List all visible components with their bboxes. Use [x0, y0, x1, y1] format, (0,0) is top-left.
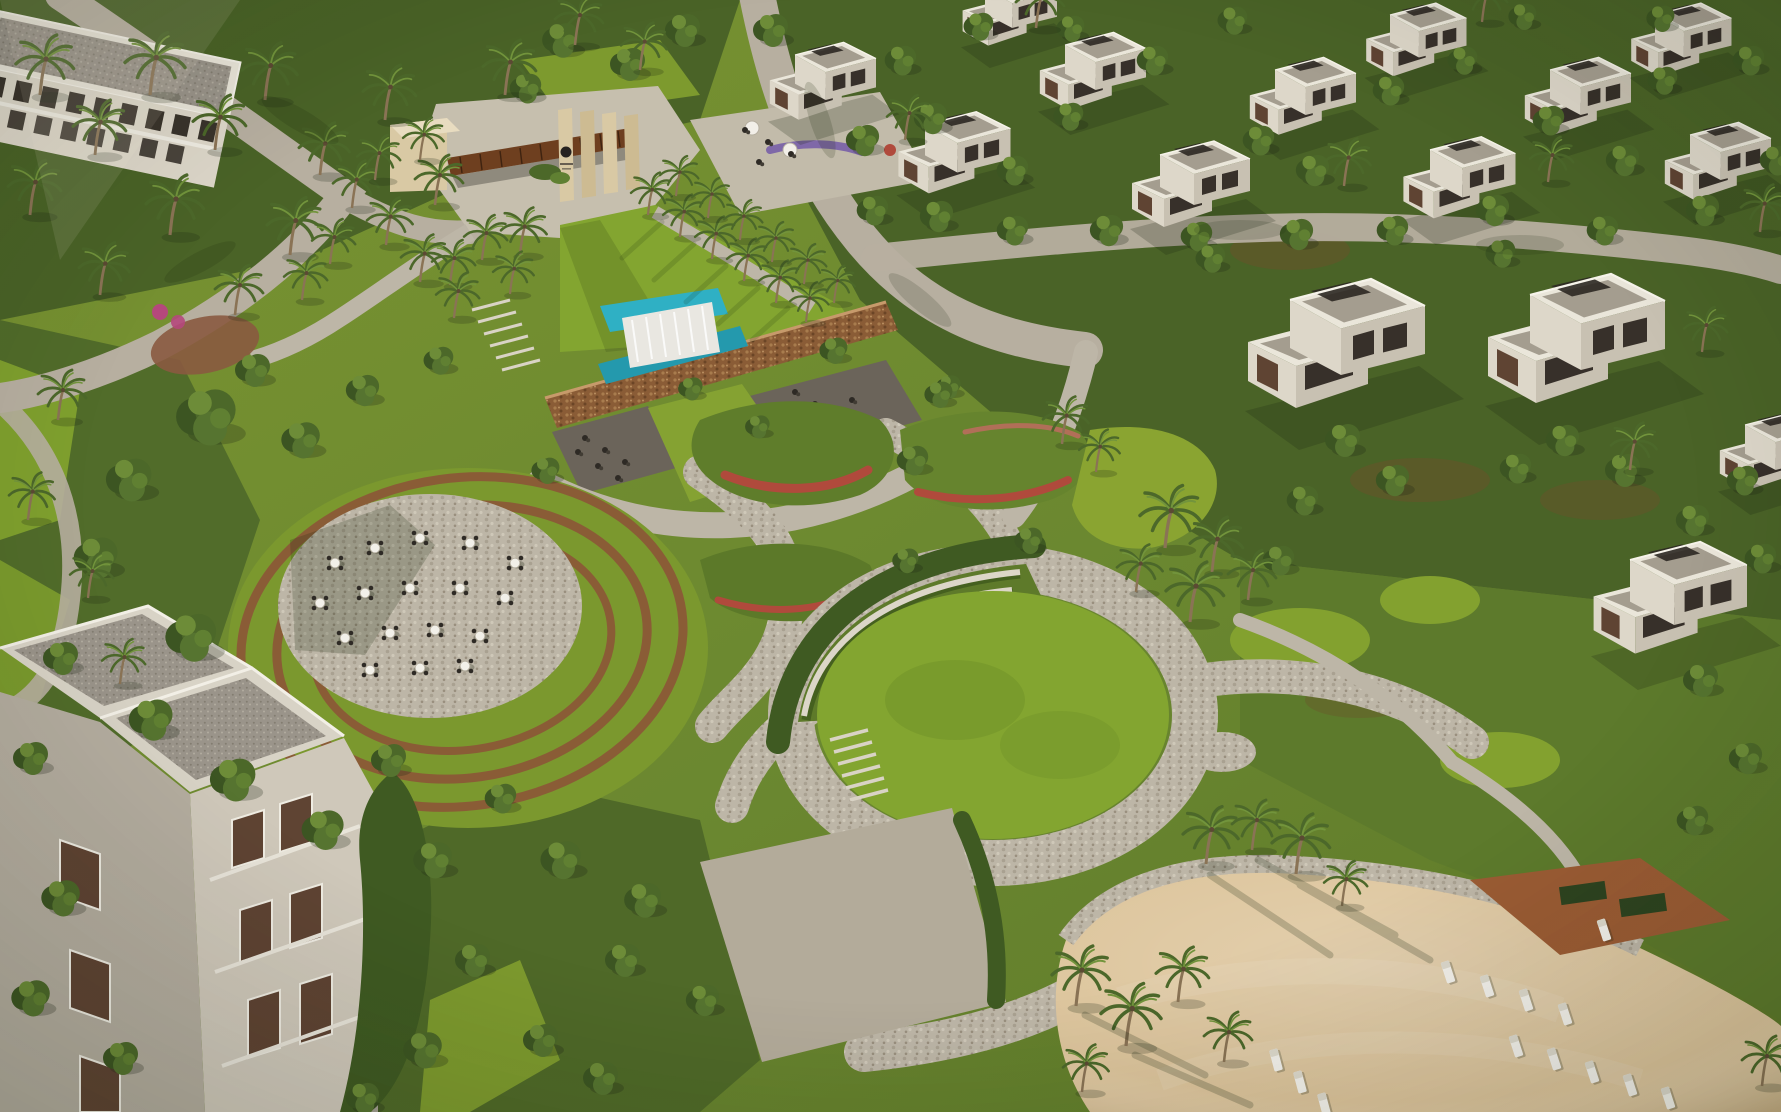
lighting-overlay [0, 0, 1781, 1112]
aerial-masterplan-render [0, 0, 1781, 1112]
aerial-render-canvas [0, 0, 1781, 1112]
